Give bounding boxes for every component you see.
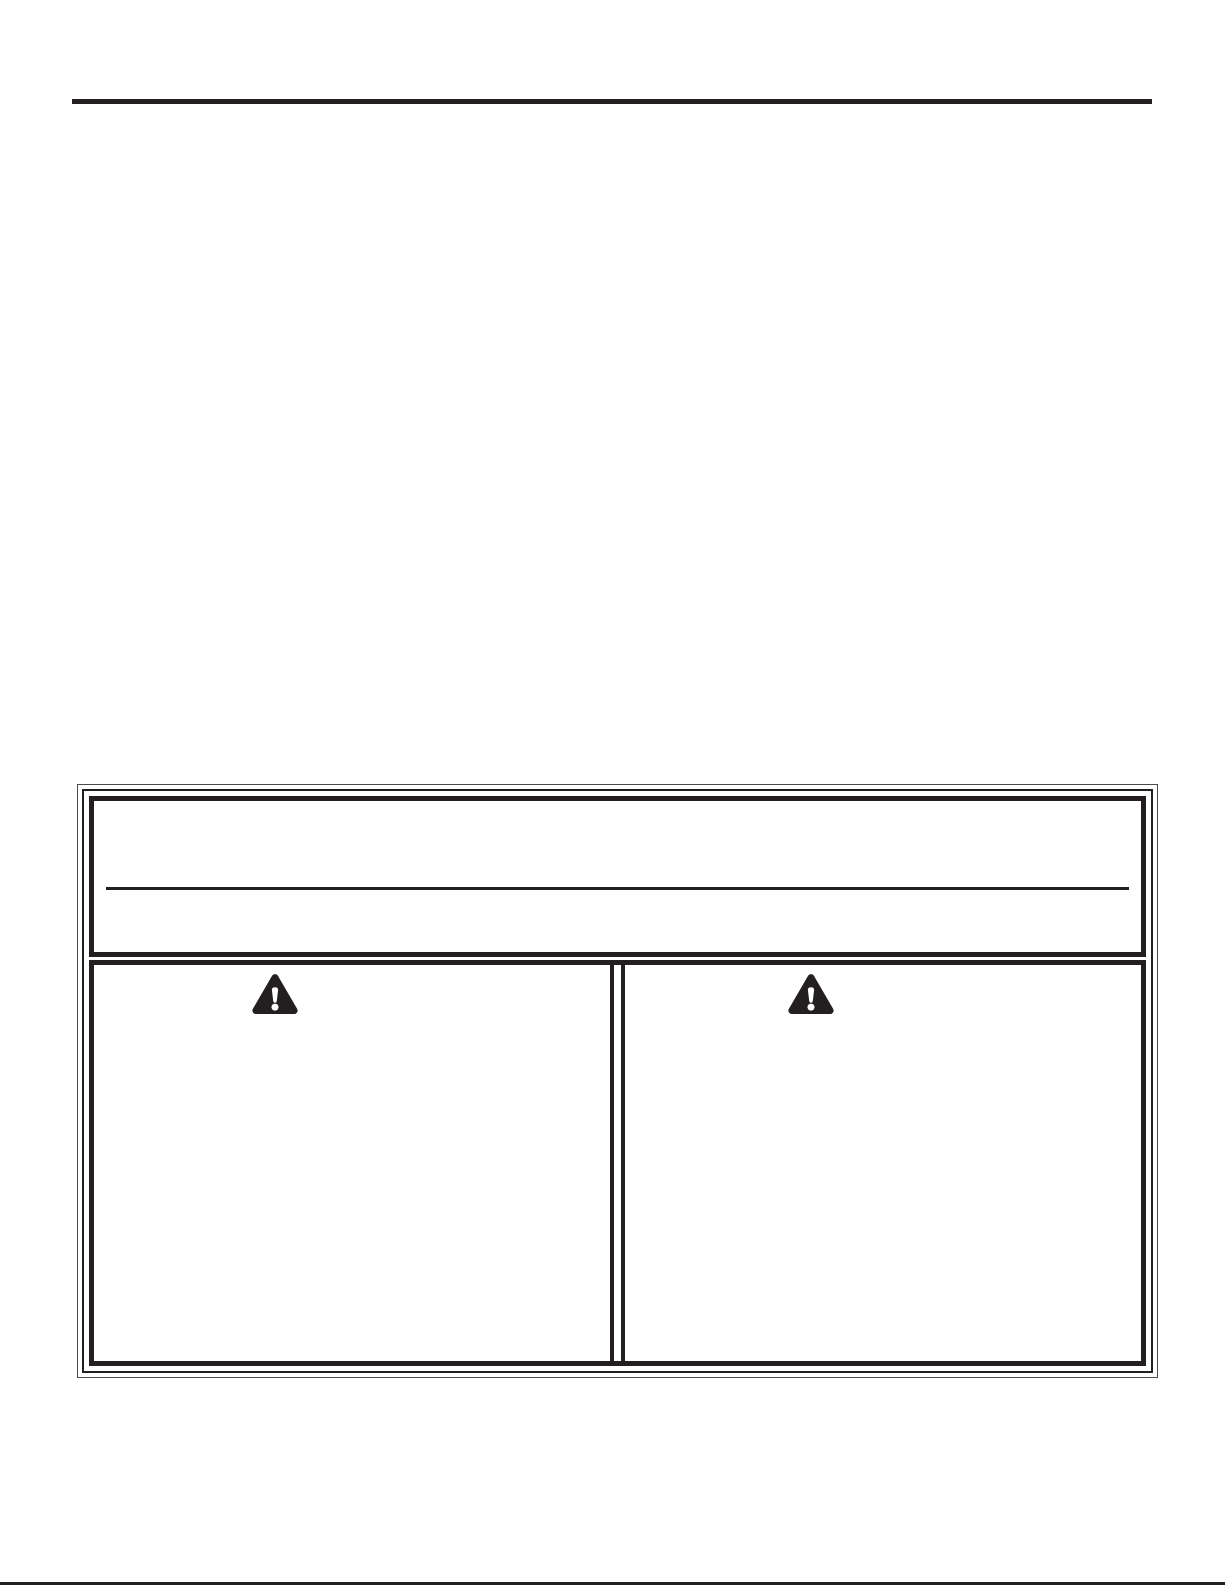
- warning-triangle-icon: [252, 971, 298, 1018]
- document-page: [0, 0, 1225, 1585]
- warnings-box: [89, 960, 1146, 1366]
- notice-header-box: [89, 796, 1146, 957]
- safety-panel-frame-inner: [82, 789, 1153, 1373]
- safety-panel-frame: [77, 784, 1158, 1378]
- warning-column-right: [621, 965, 1141, 1361]
- warning-triangle-icon: [788, 971, 834, 1018]
- page-top-rule: [72, 99, 1152, 104]
- warning-column-left: [94, 965, 614, 1361]
- notice-header-divider: [106, 887, 1129, 890]
